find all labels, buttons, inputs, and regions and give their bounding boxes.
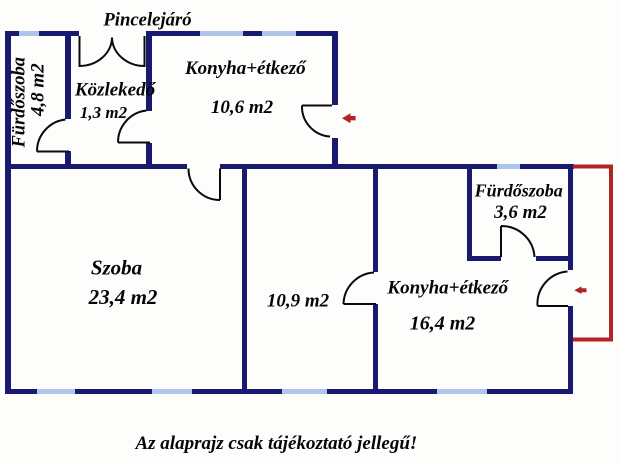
svg-text:Fürdőszoba: Fürdőszoba [10, 57, 30, 148]
svg-text:1,3 m2: 1,3 m2 [80, 103, 128, 122]
svg-text:10,9 m2: 10,9 m2 [267, 291, 330, 312]
svg-text:23,4 m2: 23,4 m2 [88, 285, 158, 309]
svg-text:Az alaprajz csak tájékoztató j: Az alaprajz csak tájékoztató jellegű! [134, 433, 417, 454]
svg-text:Konyha+étkező: Konyha+étkező [184, 58, 307, 79]
svg-text:Fürdőszoba: Fürdőszoba [474, 181, 563, 201]
svg-text:4,8 m2: 4,8 m2 [28, 63, 49, 117]
svg-text:Közlekedő: Közlekedő [74, 80, 157, 101]
svg-text:16,4 m2: 16,4 m2 [410, 313, 476, 335]
svg-text:3,6 m2: 3,6 m2 [493, 202, 547, 223]
svg-text:Konyha+étkező: Konyha+étkező [386, 278, 509, 299]
svg-text:Pincelejáró: Pincelejáró [102, 10, 191, 31]
svg-text:10,6 m2: 10,6 m2 [211, 97, 274, 118]
svg-text:Szoba: Szoba [91, 256, 142, 280]
